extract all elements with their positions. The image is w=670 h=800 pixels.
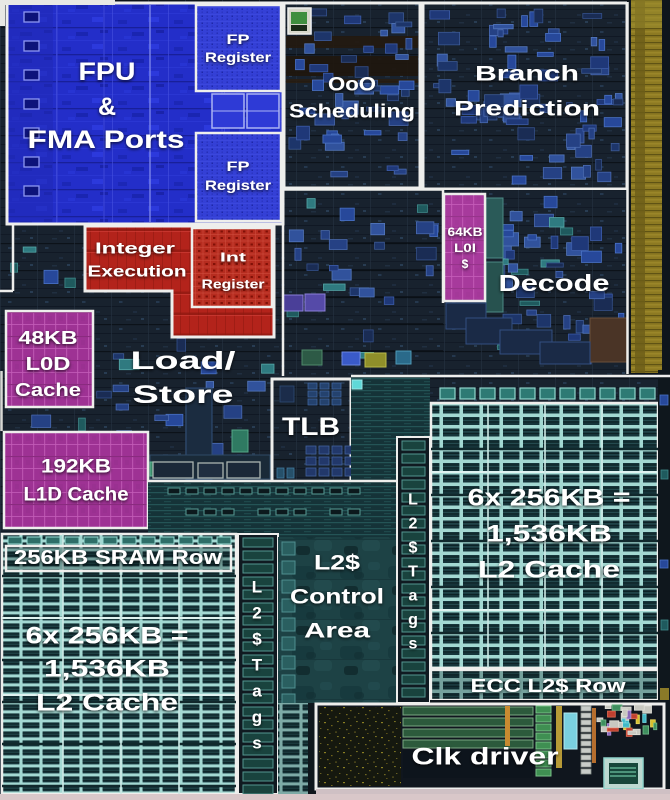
svg-text:&: &	[98, 93, 116, 121]
svg-text:Integer: Integer	[95, 241, 175, 258]
svg-text:1,536KB: 1,536KB	[486, 521, 612, 548]
svg-text:Int: Int	[220, 250, 247, 265]
svg-text:TLB: TLB	[282, 413, 340, 441]
svg-text:$: $	[252, 630, 262, 649]
svg-text:L2 Cache: L2 Cache	[36, 690, 178, 717]
svg-text:2: 2	[409, 516, 418, 533]
svg-text:Store: Store	[133, 381, 234, 409]
svg-text:a: a	[252, 682, 262, 701]
svg-text:FMA Ports: FMA Ports	[28, 126, 185, 154]
svg-text:T: T	[252, 656, 263, 675]
svg-text:$: $	[462, 257, 469, 271]
svg-text:Control: Control	[290, 586, 384, 609]
svg-text:L: L	[252, 578, 262, 597]
svg-text:ECC L2$ Row: ECC L2$ Row	[471, 676, 627, 696]
svg-text:a: a	[409, 588, 418, 605]
svg-text:g: g	[252, 708, 262, 727]
svg-text:Register: Register	[205, 177, 272, 193]
svg-text:1,536KB: 1,536KB	[44, 656, 170, 683]
svg-text:g: g	[408, 612, 418, 629]
svg-text:64KB: 64KB	[448, 225, 483, 239]
svg-text:L2$: L2$	[314, 552, 360, 575]
svg-text:L2 Cache: L2 Cache	[478, 557, 620, 584]
svg-text:2: 2	[252, 604, 261, 623]
svg-text:256KB SRAM Row: 256KB SRAM Row	[14, 547, 223, 569]
svg-text:Branch: Branch	[475, 63, 579, 86]
svg-text:Prediction: Prediction	[454, 98, 600, 121]
svg-text:Area: Area	[304, 620, 370, 643]
svg-text:T: T	[408, 564, 418, 581]
svg-text:Register: Register	[202, 277, 265, 292]
svg-text:6x 256KB =: 6x 256KB =	[468, 485, 631, 512]
svg-text:s: s	[252, 734, 261, 753]
svg-text:s: s	[409, 636, 418, 653]
svg-text:L: L	[408, 492, 418, 509]
svg-text:Load/: Load/	[131, 347, 236, 375]
svg-text:Cache: Cache	[15, 380, 81, 400]
svg-text:FP: FP	[227, 31, 250, 47]
svg-text:FPU: FPU	[79, 58, 136, 86]
svg-text:L0D: L0D	[26, 354, 71, 374]
svg-text:FP: FP	[227, 158, 250, 174]
svg-text:$: $	[409, 540, 418, 557]
svg-text:6x 256KB =: 6x 256KB =	[26, 623, 189, 650]
svg-text:Scheduling: Scheduling	[289, 102, 415, 123]
svg-text:Register: Register	[205, 49, 272, 65]
svg-text:L1D Cache: L1D Cache	[24, 485, 129, 506]
svg-text:Decode: Decode	[499, 270, 610, 296]
svg-text:192KB: 192KB	[41, 457, 111, 478]
svg-text:L0I: L0I	[454, 241, 476, 255]
svg-text:Execution: Execution	[88, 264, 187, 281]
svg-text:OoO: OoO	[328, 75, 376, 96]
svg-text:48KB: 48KB	[19, 328, 78, 348]
svg-text:Clk driver: Clk driver	[412, 744, 559, 771]
